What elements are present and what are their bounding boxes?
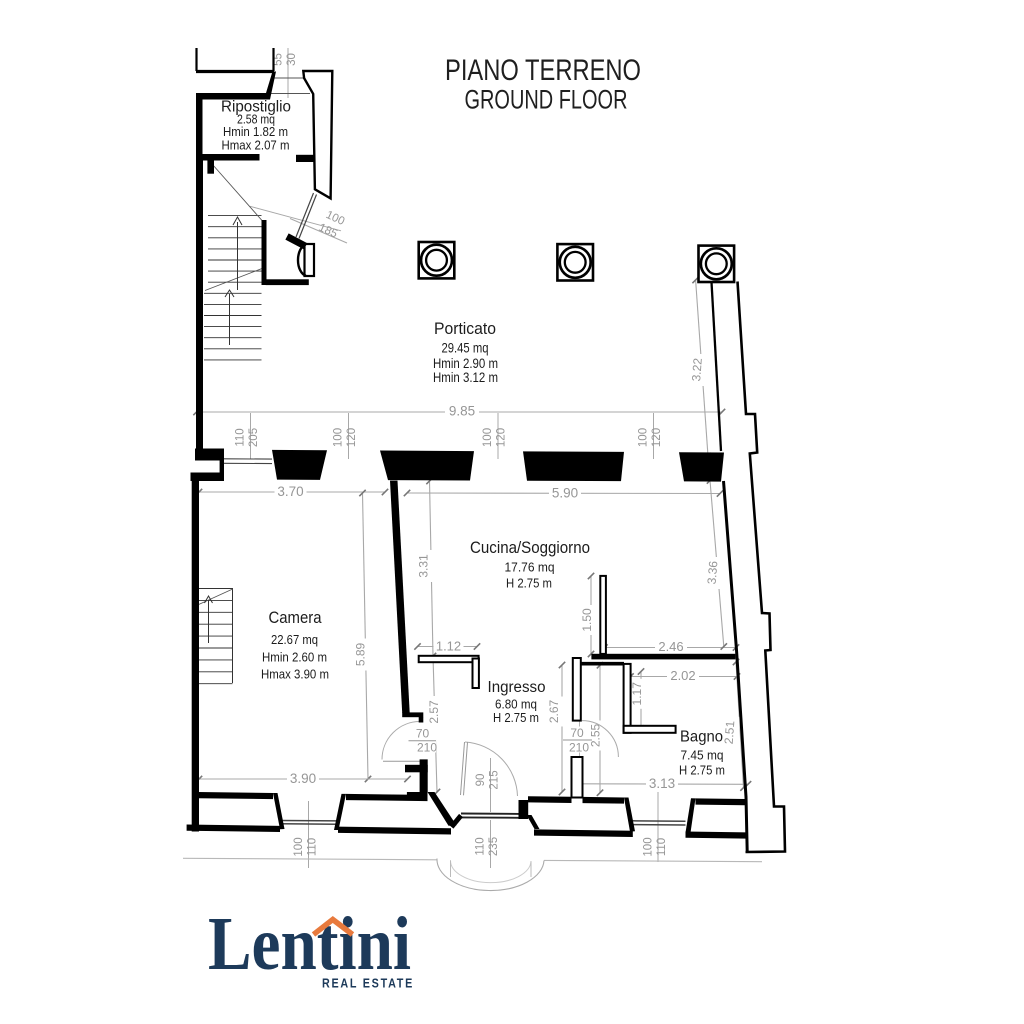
svg-text:110: 110 bbox=[475, 837, 487, 855]
svg-text:GROUND FLOOR: GROUND FLOOR bbox=[465, 85, 628, 115]
svg-text:90: 90 bbox=[475, 774, 487, 787]
svg-text:Hmax 3.90 m: Hmax 3.90 m bbox=[261, 667, 329, 682]
svg-text:3.22: 3.22 bbox=[689, 357, 705, 382]
svg-text:5.90: 5.90 bbox=[552, 486, 578, 501]
svg-text:210: 210 bbox=[417, 741, 437, 755]
svg-text:100: 100 bbox=[293, 837, 305, 856]
svg-text:1.50: 1.50 bbox=[580, 608, 594, 632]
svg-text:100: 100 bbox=[333, 428, 345, 447]
svg-text:Bagno: Bagno bbox=[680, 729, 723, 746]
svg-text:Hmin 1.82 m: Hmin 1.82 m bbox=[223, 125, 288, 139]
svg-text:2.46: 2.46 bbox=[658, 639, 683, 654]
svg-text:1.17: 1.17 bbox=[630, 682, 644, 706]
svg-text:2.55: 2.55 bbox=[589, 723, 603, 747]
svg-text:Cucina/Soggiorno: Cucina/Soggiorno bbox=[470, 539, 590, 557]
svg-text:210: 210 bbox=[569, 741, 589, 755]
svg-text:Ingresso: Ingresso bbox=[488, 679, 546, 696]
svg-text:Lentini: Lentini bbox=[208, 902, 411, 986]
svg-text:REAL ESTATE: REAL ESTATE bbox=[322, 977, 414, 991]
svg-text:3.31: 3.31 bbox=[417, 554, 431, 578]
svg-text:110: 110 bbox=[656, 838, 668, 856]
svg-text:235: 235 bbox=[488, 837, 500, 856]
svg-text:3.13: 3.13 bbox=[649, 776, 675, 791]
svg-text:17.76 mq: 17.76 mq bbox=[505, 560, 555, 575]
svg-text:120: 120 bbox=[346, 428, 358, 447]
svg-text:2.67: 2.67 bbox=[547, 699, 561, 723]
svg-text:215: 215 bbox=[489, 770, 501, 789]
svg-text:2.57: 2.57 bbox=[427, 700, 441, 724]
svg-text:30: 30 bbox=[286, 53, 298, 66]
svg-text:Hmin 2.60 m: Hmin 2.60 m bbox=[262, 650, 327, 665]
svg-text:Hmax 2.07 m: Hmax 2.07 m bbox=[222, 139, 290, 153]
svg-text:100: 100 bbox=[643, 837, 655, 856]
svg-text:100: 100 bbox=[482, 428, 494, 447]
svg-text:H 2.75 m: H 2.75 m bbox=[493, 710, 539, 725]
svg-text:Porticato: Porticato bbox=[434, 319, 496, 338]
svg-text:PIANO TERRENO: PIANO TERRENO bbox=[445, 54, 641, 87]
svg-text:Hmin 2.90 m: Hmin 2.90 m bbox=[433, 356, 498, 371]
svg-text:7.45 mq: 7.45 mq bbox=[681, 749, 724, 763]
svg-text:2.51: 2.51 bbox=[722, 720, 738, 745]
svg-text:3.70: 3.70 bbox=[277, 484, 303, 499]
svg-text:70: 70 bbox=[416, 727, 430, 741]
svg-text:3.36: 3.36 bbox=[705, 560, 721, 585]
svg-text:Hmin 3.12 m: Hmin 3.12 m bbox=[433, 370, 498, 385]
svg-text:1.12: 1.12 bbox=[436, 639, 461, 654]
svg-text:120: 120 bbox=[496, 428, 508, 447]
svg-text:205: 205 bbox=[248, 428, 260, 447]
svg-text:29.45 mq: 29.45 mq bbox=[442, 341, 489, 356]
svg-text:3.90: 3.90 bbox=[290, 771, 316, 786]
svg-text:110: 110 bbox=[235, 428, 247, 446]
svg-text:100: 100 bbox=[638, 428, 650, 447]
svg-text:5.89: 5.89 bbox=[354, 642, 368, 666]
svg-text:Camera: Camera bbox=[269, 609, 323, 627]
svg-text:110: 110 bbox=[307, 838, 319, 856]
svg-text:120: 120 bbox=[651, 428, 663, 447]
svg-text:70: 70 bbox=[570, 726, 584, 740]
svg-text:22.67 mq: 22.67 mq bbox=[271, 632, 318, 647]
svg-text:H 2.75 m: H 2.75 m bbox=[506, 576, 552, 591]
svg-text:H 2.75 m: H 2.75 m bbox=[679, 764, 725, 778]
svg-text:2.02: 2.02 bbox=[670, 668, 695, 683]
svg-text:9.85: 9.85 bbox=[449, 404, 475, 419]
